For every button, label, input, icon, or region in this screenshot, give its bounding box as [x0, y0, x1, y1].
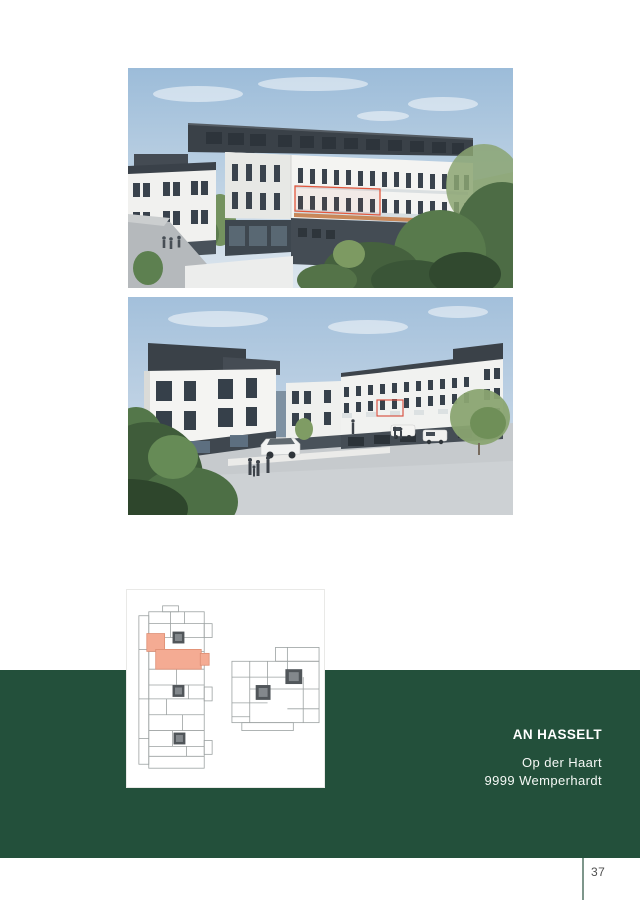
right-plan-stair-cores — [256, 669, 303, 700]
brochure-page: AN HASSELT Op der Haart 9999 Wemperhardt — [0, 0, 640, 900]
rendering-middle-graphic — [128, 297, 513, 515]
project-info: AN HASSELT Op der Haart 9999 Wemperhardt — [485, 727, 602, 789]
rendering-top-graphic — [128, 68, 513, 288]
highlighted-unit-outline — [295, 186, 380, 215]
footer-divider — [582, 858, 584, 900]
page-number: 37 — [591, 865, 605, 879]
left-plan-stair-cores — [173, 632, 186, 745]
small-tree — [295, 418, 313, 440]
rendering-photo-top — [128, 68, 513, 288]
rendering-photo-middle — [128, 297, 513, 515]
floor-plan-drawing — [127, 590, 324, 787]
project-address-line-1: Op der Haart — [485, 754, 602, 772]
project-name: AN HASSELT — [485, 727, 602, 743]
right-building-plan — [232, 647, 319, 730]
project-address-line-2: 9999 Wemperhardt — [485, 772, 602, 790]
small-tree — [133, 251, 163, 285]
floor-plan-card — [126, 589, 325, 788]
pedestrians — [162, 236, 181, 249]
